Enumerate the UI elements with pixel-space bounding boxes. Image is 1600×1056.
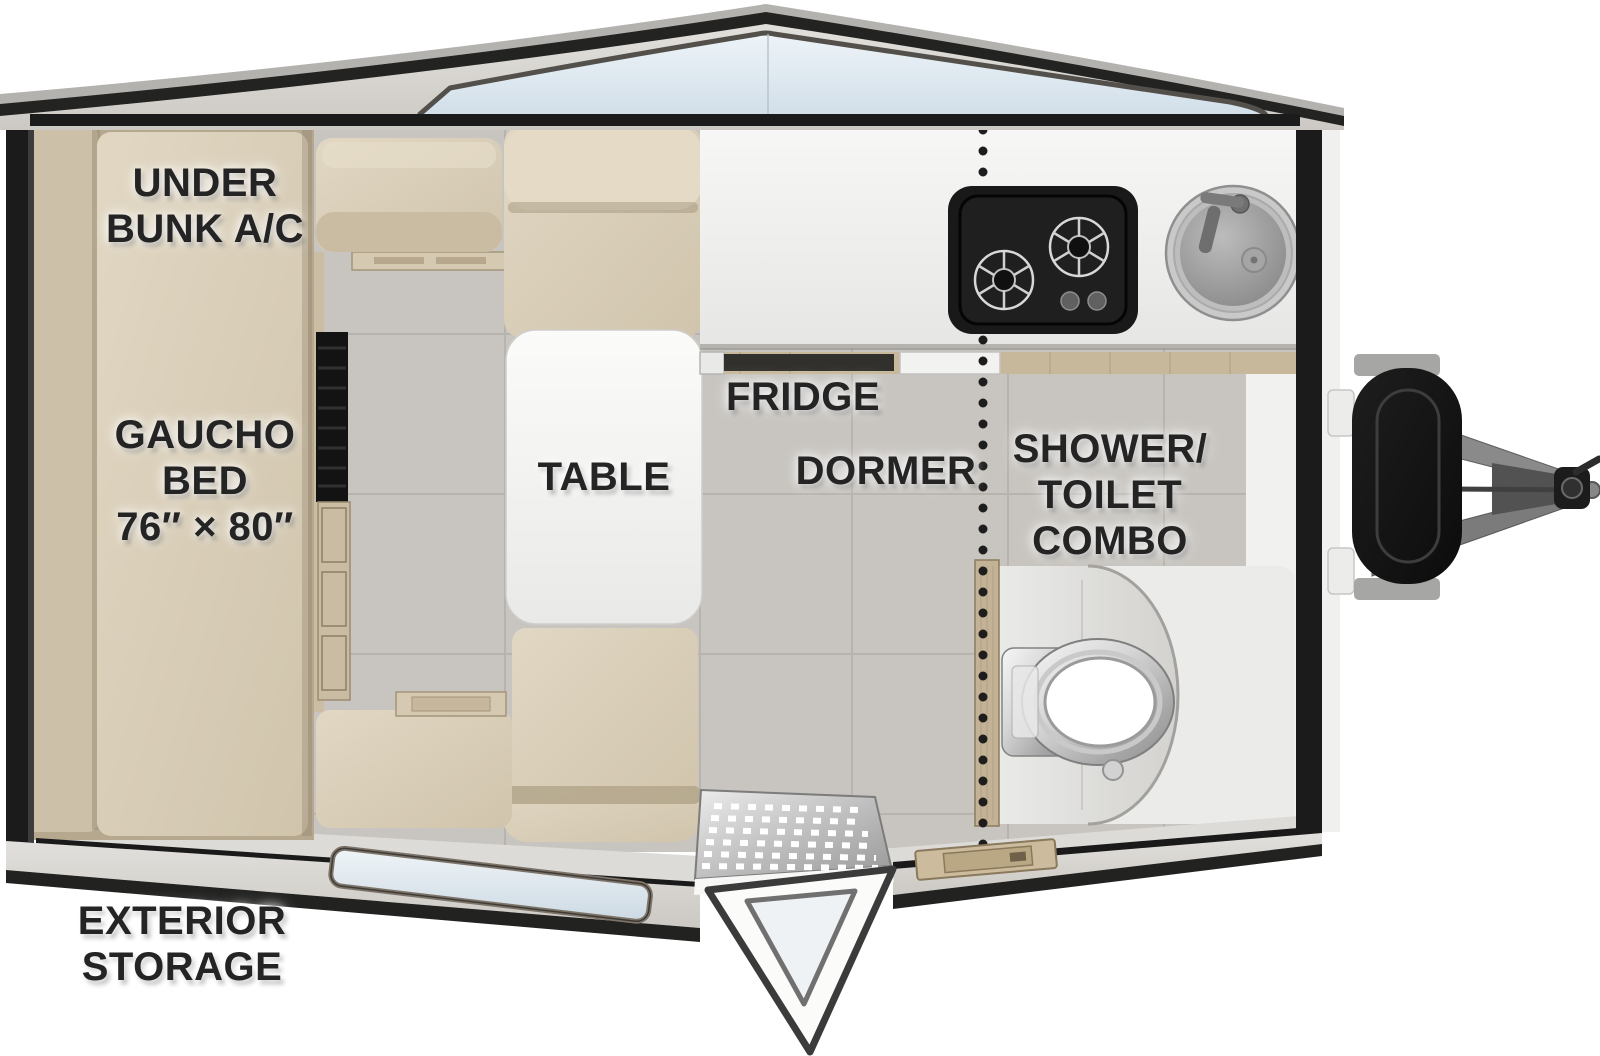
wood-drawer-stack xyxy=(318,502,350,700)
toilet-seat xyxy=(1045,658,1155,746)
cooktop-knob xyxy=(1088,292,1106,310)
top-wall-line xyxy=(30,114,1300,126)
label-exterior-storage: EXTERIOR STORAGE xyxy=(78,898,286,990)
propane-tank-cover xyxy=(1352,368,1462,584)
label-table: TABLE xyxy=(538,454,671,500)
bed-side-cushion xyxy=(26,126,98,832)
hitch-assembly xyxy=(1328,354,1600,600)
fridge-vent xyxy=(724,354,894,371)
label-dormer: DORMER xyxy=(796,448,977,494)
label-gaucho-bed: GAUCHO BED 76″ × 80″ xyxy=(115,412,296,550)
right-wall xyxy=(1296,112,1322,838)
shower-wood-wall xyxy=(975,560,999,826)
label-fridge: FRIDGE xyxy=(726,374,880,420)
entry xyxy=(694,790,894,1052)
floorplan: UNDER BUNK A/C GAUCHO BED 76″ × 80″ TABL… xyxy=(0,0,1600,1056)
round-sink-icon xyxy=(1166,186,1300,320)
cooktop-knob xyxy=(1061,292,1079,310)
two-burner-cooktop-icon xyxy=(948,186,1138,334)
front-bench-roll xyxy=(504,126,702,210)
label-under-bunk-ac: UNDER BUNK A/C xyxy=(106,160,304,252)
label-shower-toilet-combo: SHOWER/ TOILET COMBO xyxy=(1013,426,1208,564)
right-wall-exterior-face xyxy=(1322,118,1340,832)
side-bench-seat xyxy=(316,710,512,828)
head-cushion-roll xyxy=(316,212,502,252)
heater-unit xyxy=(316,332,348,502)
